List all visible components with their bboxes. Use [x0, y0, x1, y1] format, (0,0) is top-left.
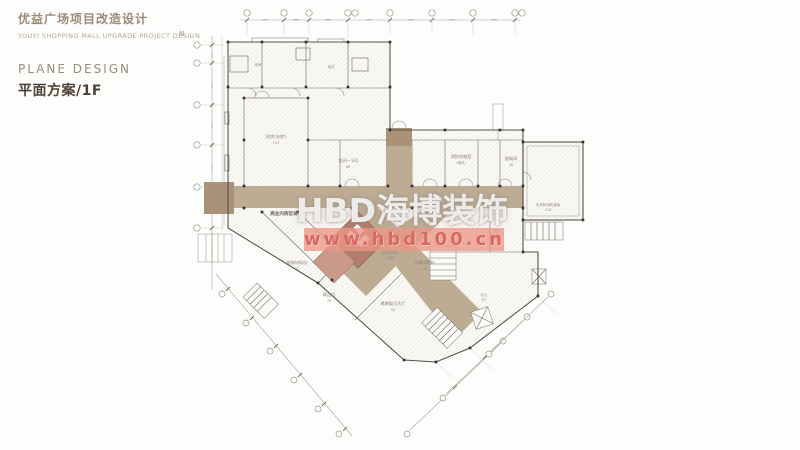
exterior-steps-west — [198, 234, 232, 262]
room-number: 216 — [545, 208, 551, 212]
watermark-website: www.hbd100.cn — [304, 228, 504, 251]
room-label: 机房和消防通道 — [536, 202, 560, 207]
room-label: 内廊(购物) — [415, 259, 435, 266]
room-number: 76 — [327, 299, 331, 303]
slide: 优益广场项目改造设计 YOUYI SHOPPING MALL UPGRADE P… — [0, 0, 800, 450]
stair-annex — [525, 222, 563, 240]
annex-block — [523, 142, 583, 220]
room-label: 消防控制室 — [451, 153, 472, 160]
room-number: (海关) — [456, 160, 466, 165]
room-number: 54 — [391, 308, 395, 312]
watermark-brand: HBD海博装饰 — [292, 184, 512, 232]
room-label: 装饰材料店 — [287, 259, 308, 266]
room-number: 26 — [509, 163, 513, 167]
room-number: 87 — [482, 298, 486, 302]
room-label: 库房 — [255, 62, 262, 67]
entrance-vestibule — [204, 182, 234, 214]
stair-southwest — [243, 283, 278, 318]
room-label: 办公 — [481, 292, 488, 297]
dimension-line-bottom-left — [216, 274, 352, 437]
room-number: 42 — [423, 267, 427, 271]
elevator-2 — [532, 269, 546, 284]
room-number: (烘焙) — [385, 255, 395, 260]
room-number: 113 — [273, 141, 279, 145]
room-label: 棋牌娱乐大厅 — [380, 300, 405, 307]
room-label: 配电间 — [505, 155, 518, 162]
room-label: 电井 — [328, 64, 335, 69]
room-number: 68 — [346, 165, 350, 169]
dimension-grid-left — [194, 36, 224, 290]
north-indicator: N — [179, 30, 185, 38]
dimension-grid-top — [240, 10, 525, 38]
room-label: 包间一1间 — [338, 157, 357, 164]
room-label: 精品店 — [323, 291, 336, 298]
room-label: 机房(仓库) — [266, 133, 286, 140]
room-number: 97 — [295, 267, 299, 271]
